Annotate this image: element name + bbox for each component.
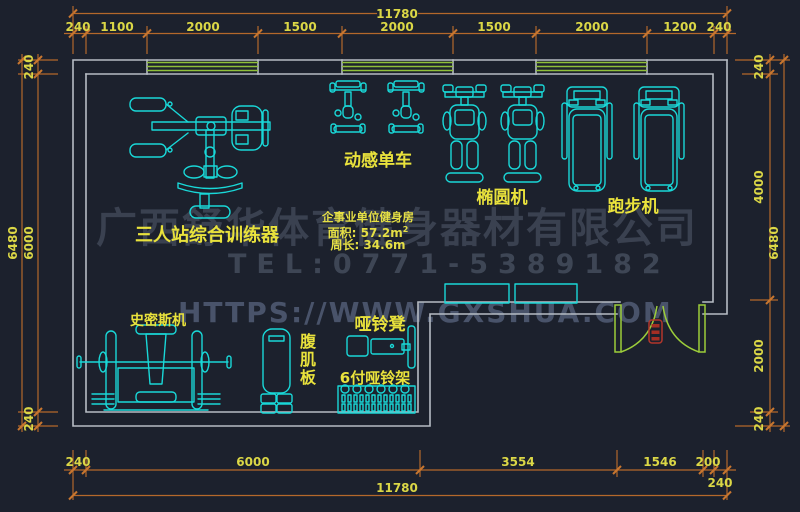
room-perimeter: 周长: 34.6m — [322, 239, 414, 252]
label-treadmill: 跑步机 — [608, 192, 659, 217]
dim-bottom-total: 11780 — [376, 481, 418, 495]
double-door — [615, 305, 705, 352]
treadmill-icon — [634, 87, 684, 191]
floor-mat — [445, 284, 577, 303]
spin-bike-icon — [388, 81, 424, 133]
dim-top-total: 11780 — [376, 7, 418, 21]
label-ab-board: 腹肌板 — [294, 333, 318, 387]
door-exit-symbol — [649, 320, 662, 343]
dim-right-total: 6480 — [767, 226, 781, 259]
dim-top-chain-4: 2000 — [380, 20, 413, 34]
dim-left-total: 6480 — [6, 226, 20, 259]
dim-top-chain-6: 2000 — [575, 20, 608, 34]
ab-board-icon — [261, 329, 292, 413]
floor-plan-drawing: 11780 240 1100 2000 1500 2000 1500 2000 … — [0, 0, 800, 512]
window-band-3 — [536, 63, 647, 71]
dim-right-chain-2: 2000 — [752, 339, 766, 372]
label-dumbbell-rack: 6付哑铃架 — [340, 367, 410, 388]
smith-machine-icon — [77, 325, 231, 410]
dim-left-chain-2: 240 — [22, 406, 36, 431]
dim-top-chain-1: 1100 — [100, 20, 133, 34]
dim-bottom-chain-4: 200 — [695, 455, 720, 469]
label-smith-machine: 史密斯机 — [130, 310, 186, 330]
dim-right-chain-0: 240 — [752, 54, 766, 79]
dimension-lines-right: 240 4000 2000 240 6480 — [735, 54, 790, 432]
dimension-lines-left: 240 6000 240 6480 — [6, 54, 58, 432]
dim-top-chain-8: 240 — [706, 20, 731, 34]
label-multi-station-trainer: 三人站综合训练器 — [135, 221, 279, 247]
dim-right-chain-3: 240 — [752, 406, 766, 431]
dim-bottom-chain-5: 240 — [707, 476, 732, 490]
dim-bottom-chain-2: 3554 — [501, 455, 534, 469]
room-area: 面积: 57.2m2 — [322, 224, 414, 240]
label-elliptical: 椭圆机 — [477, 183, 528, 208]
room-info: 企事业单位健身房 面积: 57.2m2 周长: 34.6m — [322, 211, 414, 252]
dimension-lines-top: 11780 240 1100 2000 1500 2000 1500 2000 … — [64, 6, 736, 54]
dimension-lines-bottom: 240 6000 3554 1546 200 240 11780 — [64, 450, 736, 500]
elliptical-icon — [443, 85, 486, 182]
room-name: 企事业单位健身房 — [322, 211, 414, 224]
dim-top-chain-2: 2000 — [186, 20, 219, 34]
dim-left-chain-1: 6000 — [22, 226, 36, 259]
spin-bike-icon — [330, 81, 366, 133]
elliptical-icon — [501, 85, 544, 182]
dim-left-chain-0: 240 — [22, 54, 36, 79]
dim-top-chain-3: 1500 — [283, 20, 316, 34]
multi-station-trainer-icon — [130, 98, 270, 218]
treadmill-icon — [562, 87, 612, 191]
dim-bottom-chain-3: 1546 — [643, 455, 676, 469]
dim-right-chain-1: 4000 — [752, 170, 766, 203]
window-band-1 — [147, 63, 258, 71]
label-dumbbell-bench: 哑铃凳 — [355, 310, 406, 335]
label-spin-bike: 动感单车 — [344, 146, 412, 171]
window-band-2 — [342, 63, 453, 71]
dim-top-chain-0: 240 — [65, 20, 90, 34]
dim-top-chain-5: 1500 — [477, 20, 510, 34]
dim-bottom-chain-0: 240 — [65, 455, 90, 469]
dim-bottom-chain-1: 6000 — [236, 455, 269, 469]
dumbbell-rack-icon — [338, 385, 415, 413]
dim-top-chain-7: 1200 — [663, 20, 696, 34]
cad-floor-plan: 广西舒华体育健身器材有限公司 TEL:0771-5389182 HTTPS://… — [0, 0, 800, 512]
